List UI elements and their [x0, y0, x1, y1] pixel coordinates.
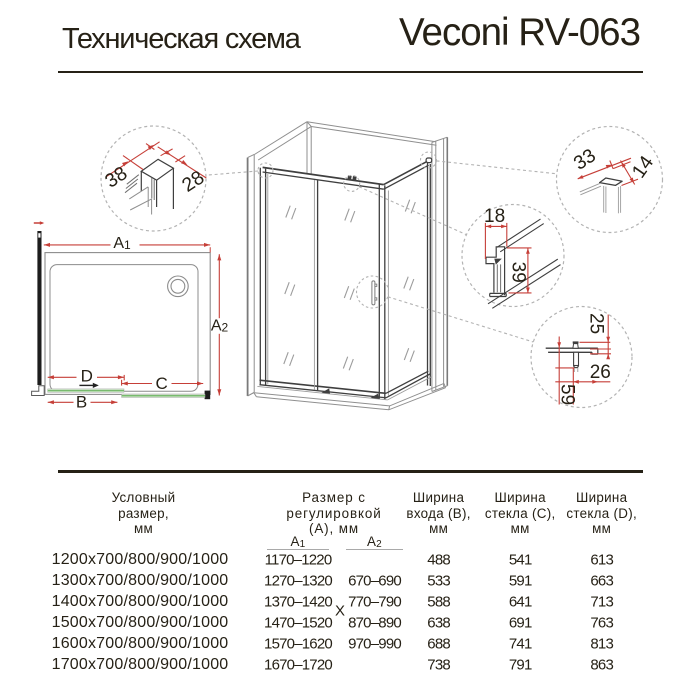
svg-text:C: C: [156, 374, 168, 393]
svg-text:25: 25: [586, 313, 607, 334]
svg-text:33: 33: [570, 144, 600, 174]
svg-text:26: 26: [590, 362, 611, 383]
svg-text:59: 59: [557, 384, 578, 405]
svg-text:18: 18: [484, 206, 505, 227]
svg-text:14: 14: [628, 152, 659, 183]
svg-text:А1: А1: [113, 235, 131, 252]
svg-text:39: 39: [507, 262, 528, 283]
svg-text:B: B: [76, 393, 87, 412]
svg-text:D: D: [81, 367, 93, 386]
svg-text:А2: А2: [211, 318, 229, 335]
